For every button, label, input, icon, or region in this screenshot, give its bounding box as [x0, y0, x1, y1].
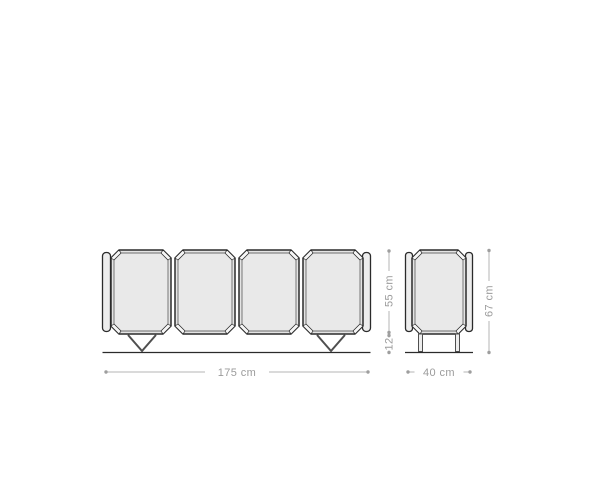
dimension-body-height: 55 cm: [382, 249, 397, 334]
dimension-label-depth: 40 cm: [423, 367, 455, 379]
dimension-label-width: 175 cm: [218, 367, 256, 379]
side-view: 40 cm 67 cm: [405, 249, 497, 380]
v-leg-left: [129, 336, 156, 352]
dimension-label-leg-height: 12: [384, 337, 396, 350]
side-leg-back: [456, 334, 460, 352]
dimension-label-total-height: 67 cm: [484, 285, 496, 317]
dimension-endpoint: [487, 249, 490, 252]
side-leg-front: [419, 334, 423, 352]
door-panel-4: [303, 250, 363, 334]
dimension-endpoint: [406, 370, 409, 373]
dimension-label-body-height: 55 cm: [384, 275, 396, 307]
dimension-endpoint: [387, 249, 390, 252]
front-view: 175 cm: [103, 250, 371, 380]
dimension-depth: 40 cm: [406, 365, 471, 380]
dimension-total-height: 67 cm: [482, 249, 497, 354]
v-leg-right: [318, 336, 345, 352]
dimension-endpoint: [468, 370, 471, 373]
side-door-panel: [412, 250, 466, 334]
furniture-dimension-diagram: 175 cm 55 cm 12 40 cm: [0, 0, 600, 500]
door-panel-3: [239, 250, 299, 334]
door-panel-2: [175, 250, 235, 334]
dimension-endpoint: [387, 334, 390, 337]
cabinet-left-edge-panel: [103, 253, 111, 332]
dimension-endpoint: [366, 370, 369, 373]
dimension-endpoint: [387, 331, 390, 334]
dimension-endpoint: [487, 351, 490, 354]
dimension-width: 175 cm: [104, 365, 369, 380]
door-panel-1: [111, 250, 171, 334]
dimension-endpoint: [104, 370, 107, 373]
dimension-leg-height: 12: [383, 334, 396, 354]
